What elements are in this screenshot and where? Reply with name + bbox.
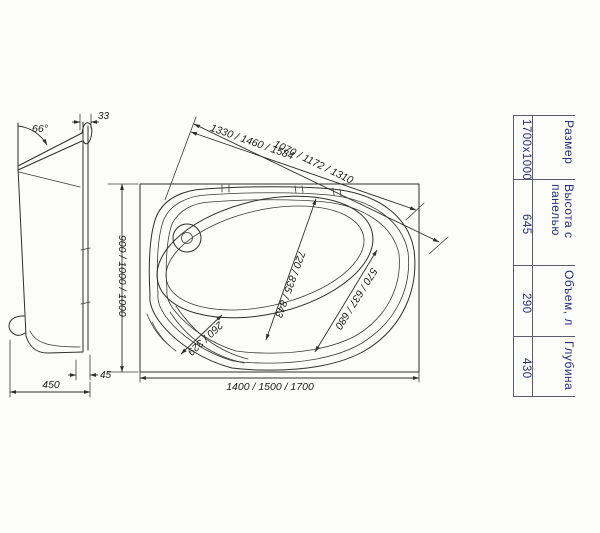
dim-label-length: 1400 / 1500 / 1700 (226, 381, 314, 393)
spec-header-size: Размер (533, 116, 575, 179)
dim-label-diag-width: 720 / 835 / 843 (272, 249, 307, 319)
dim-label-seat: 260 / 329 (185, 318, 226, 357)
spec-header-height: Высота с панелью (533, 180, 575, 265)
spec-row-height: 645 Высота с панелью (513, 180, 575, 266)
spec-value-size: 1700x1000 (513, 116, 533, 179)
bathtub-technical-drawing: 66° 33 45 450 (0, 0, 600, 533)
spec-value-volume: 290 (513, 266, 533, 336)
drawing-svg: 66° 33 45 450 (0, 0, 600, 533)
dim-label-rim-overhang: 33 (98, 111, 110, 122)
spec-row-volume: 290 Объем, л (513, 266, 575, 337)
spec-value-height: 645 (513, 180, 533, 265)
spec-row-size: 1700x1000 Размер (513, 116, 575, 180)
dim-label-side: 900 / 1000 / 1000 (116, 235, 128, 317)
dim-label-depth-width: 450 (42, 379, 60, 391)
spec-header-volume: Объем, л (533, 266, 575, 336)
spec-row-depth: 430 Глубина (513, 337, 575, 397)
dim-label-diag-inner: 570 / 637 / 680 (332, 265, 379, 331)
dim-label-top-outer: 1070 / 1172 / 1310 (272, 138, 356, 187)
plan-dimensions: 1330 / 1460 / 1584 1070 / 1172 / 1310 72… (108, 117, 448, 393)
spec-table: 1700x1000 Размер 645 Высота с панелью 29… (513, 115, 575, 397)
spec-header-depth: Глубина (533, 337, 575, 396)
side-view: 66° 33 45 450 (9, 111, 112, 397)
dim-label-angle: 66° (32, 123, 48, 135)
spec-value-depth: 430 (513, 337, 533, 396)
